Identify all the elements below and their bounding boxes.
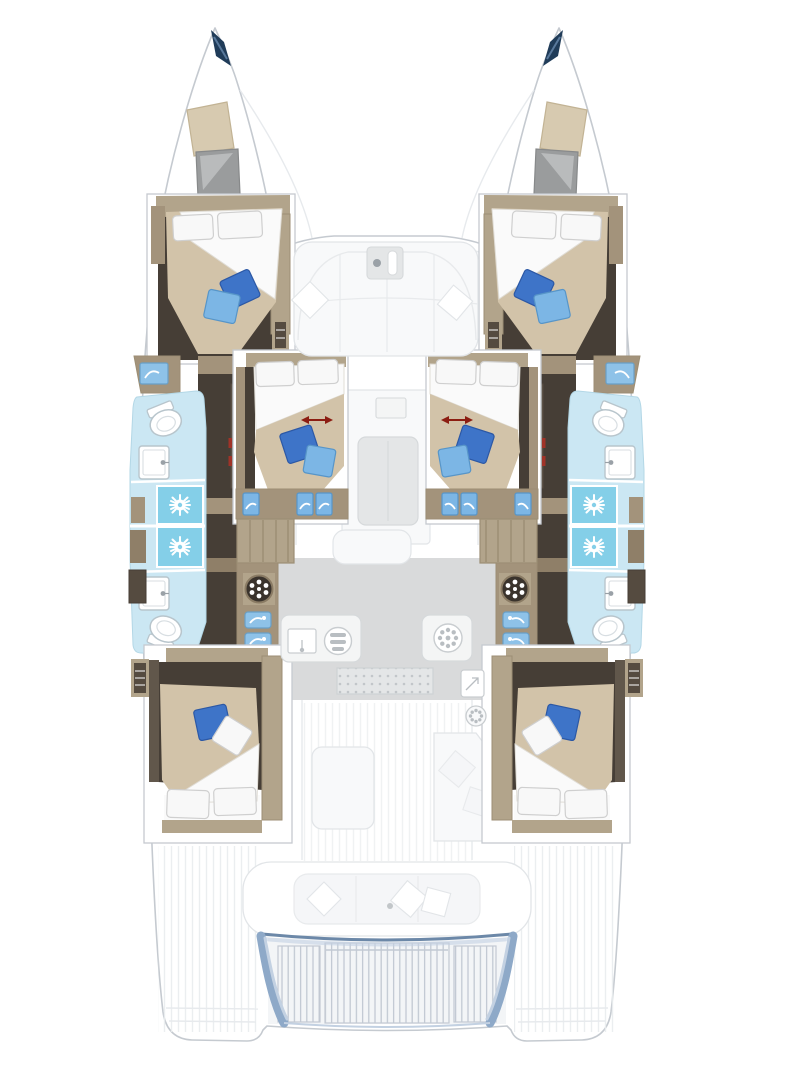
foredeck-lounge [292, 242, 478, 356]
entry-mat [337, 668, 433, 694]
platform-slats [325, 943, 449, 1023]
swim-platform [261, 934, 513, 1027]
floor-plan-canvas: Catamaran 6-cabin interior layout plan [0, 0, 791, 1080]
stern-deck [514, 846, 616, 1032]
stern-deck [158, 846, 260, 1032]
stove-top-icon [434, 624, 462, 652]
aft-bench [243, 862, 531, 936]
console-knob [373, 259, 381, 267]
catamaran-floor-plan: Catamaran 6-cabin interior layout plan [0, 0, 791, 1080]
cockpit-table [312, 747, 374, 829]
galley-grill-icon [325, 628, 352, 655]
console-handle [388, 251, 397, 275]
salon-bench [333, 530, 411, 564]
foredeck-console [367, 247, 403, 279]
companionway-hatch [376, 398, 406, 418]
deck-shower-icon [466, 706, 486, 726]
bench-fitting [387, 903, 393, 909]
